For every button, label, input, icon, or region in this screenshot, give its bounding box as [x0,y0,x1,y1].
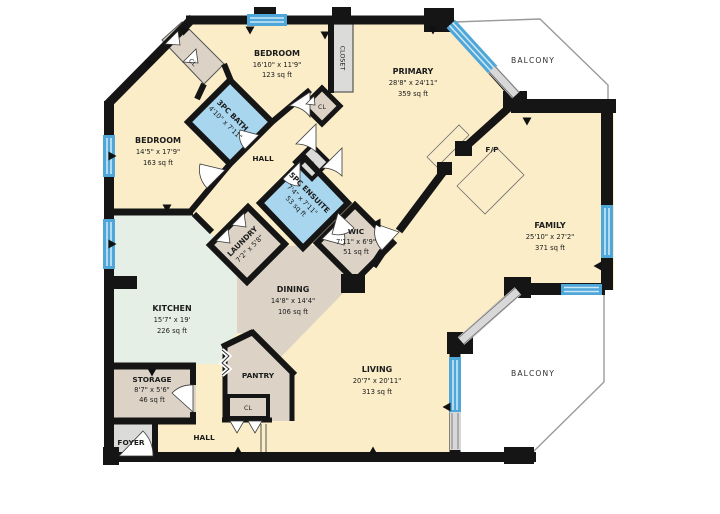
label-pantry: PANTRY [242,371,275,380]
label-storage-name: STORAGE [132,375,171,384]
label-kitchen-area: 226 sq ft [157,327,187,335]
wall-kitchen-stub [109,276,137,289]
label-wic-dims: 7'11" x 6'9" [336,238,376,246]
label-balcony-ne: BALCONY [511,56,555,65]
floor-plan-page: BEDROOM 16'10" x 11'9" 123 sq ft PRIMARY… [0,0,720,510]
label-living-name: LIVING [362,365,393,374]
label-bedroom-top-name: BEDROOM [254,49,300,58]
window-living-right [449,357,461,413]
window-right [601,205,613,258]
label-cl-pantry: CL [244,405,252,412]
label-kitchen-name: KITCHEN [152,304,191,313]
label-kitchen-dims: 15'7" x 19' [154,316,191,324]
label-storage-area: 46 sq ft [139,396,165,404]
label-family-area: 371 sq ft [535,244,565,252]
label-fireplace: F/P [485,145,499,154]
wall-corner-bottom-left [103,447,119,465]
label-bedroom-left-dims: 14'5" x 17'9" [136,148,180,156]
label-dining-name: DINING [277,285,310,294]
label-dining-area: 106 sq ft [278,308,308,316]
label-hall-upper: HALL [252,154,274,163]
label-bedroom-top-dims: 16'10" x 11'9" [253,61,302,69]
label-bedroom-left-area: 163 sq ft [143,159,173,167]
label-primary-area: 359 sq ft [398,90,428,98]
label-family-name: FAMILY [534,221,566,230]
wall-family-top [511,99,616,113]
window-top [247,14,287,26]
label-balcony-se: BALCONY [511,369,555,378]
label-wic-area: 51 sq ft [343,248,369,256]
wall-tab-top-2 [332,7,351,16]
label-storage-dims: 8'7" x 5'6" [134,386,170,394]
label-foyer: FOYER [117,438,144,447]
label-family-dims: 25'10" x 27'2" [526,233,575,241]
label-cl-mid: CL [318,104,326,111]
label-living-area: 313 sq ft [362,388,392,396]
label-closet-c: C [310,161,315,168]
wall-tab-balcony-se [504,447,534,464]
wall-fp-jog-1 [455,141,472,156]
label-bedroom-left-name: BEDROOM [135,136,181,145]
label-primary-dims: 28'8" x 24'11" [389,79,438,87]
label-primary-name: PRIMARY [393,67,434,76]
wall-corner-wic [341,274,365,293]
label-living-dims: 20'7" x 20'11" [353,377,402,385]
label-hall-lower: HALL [193,433,215,442]
label-bedroom-top-area: 123 sq ft [262,71,292,79]
floor-plan-drawing: BEDROOM 16'10" x 11'9" 123 sq ft PRIMARY… [0,0,720,510]
window-family-bottom [561,284,602,295]
label-closet: CLOSET [339,46,346,71]
label-dining-dims: 14'8" x 14'4" [271,297,315,305]
label-wic-name: WIC [348,227,364,236]
